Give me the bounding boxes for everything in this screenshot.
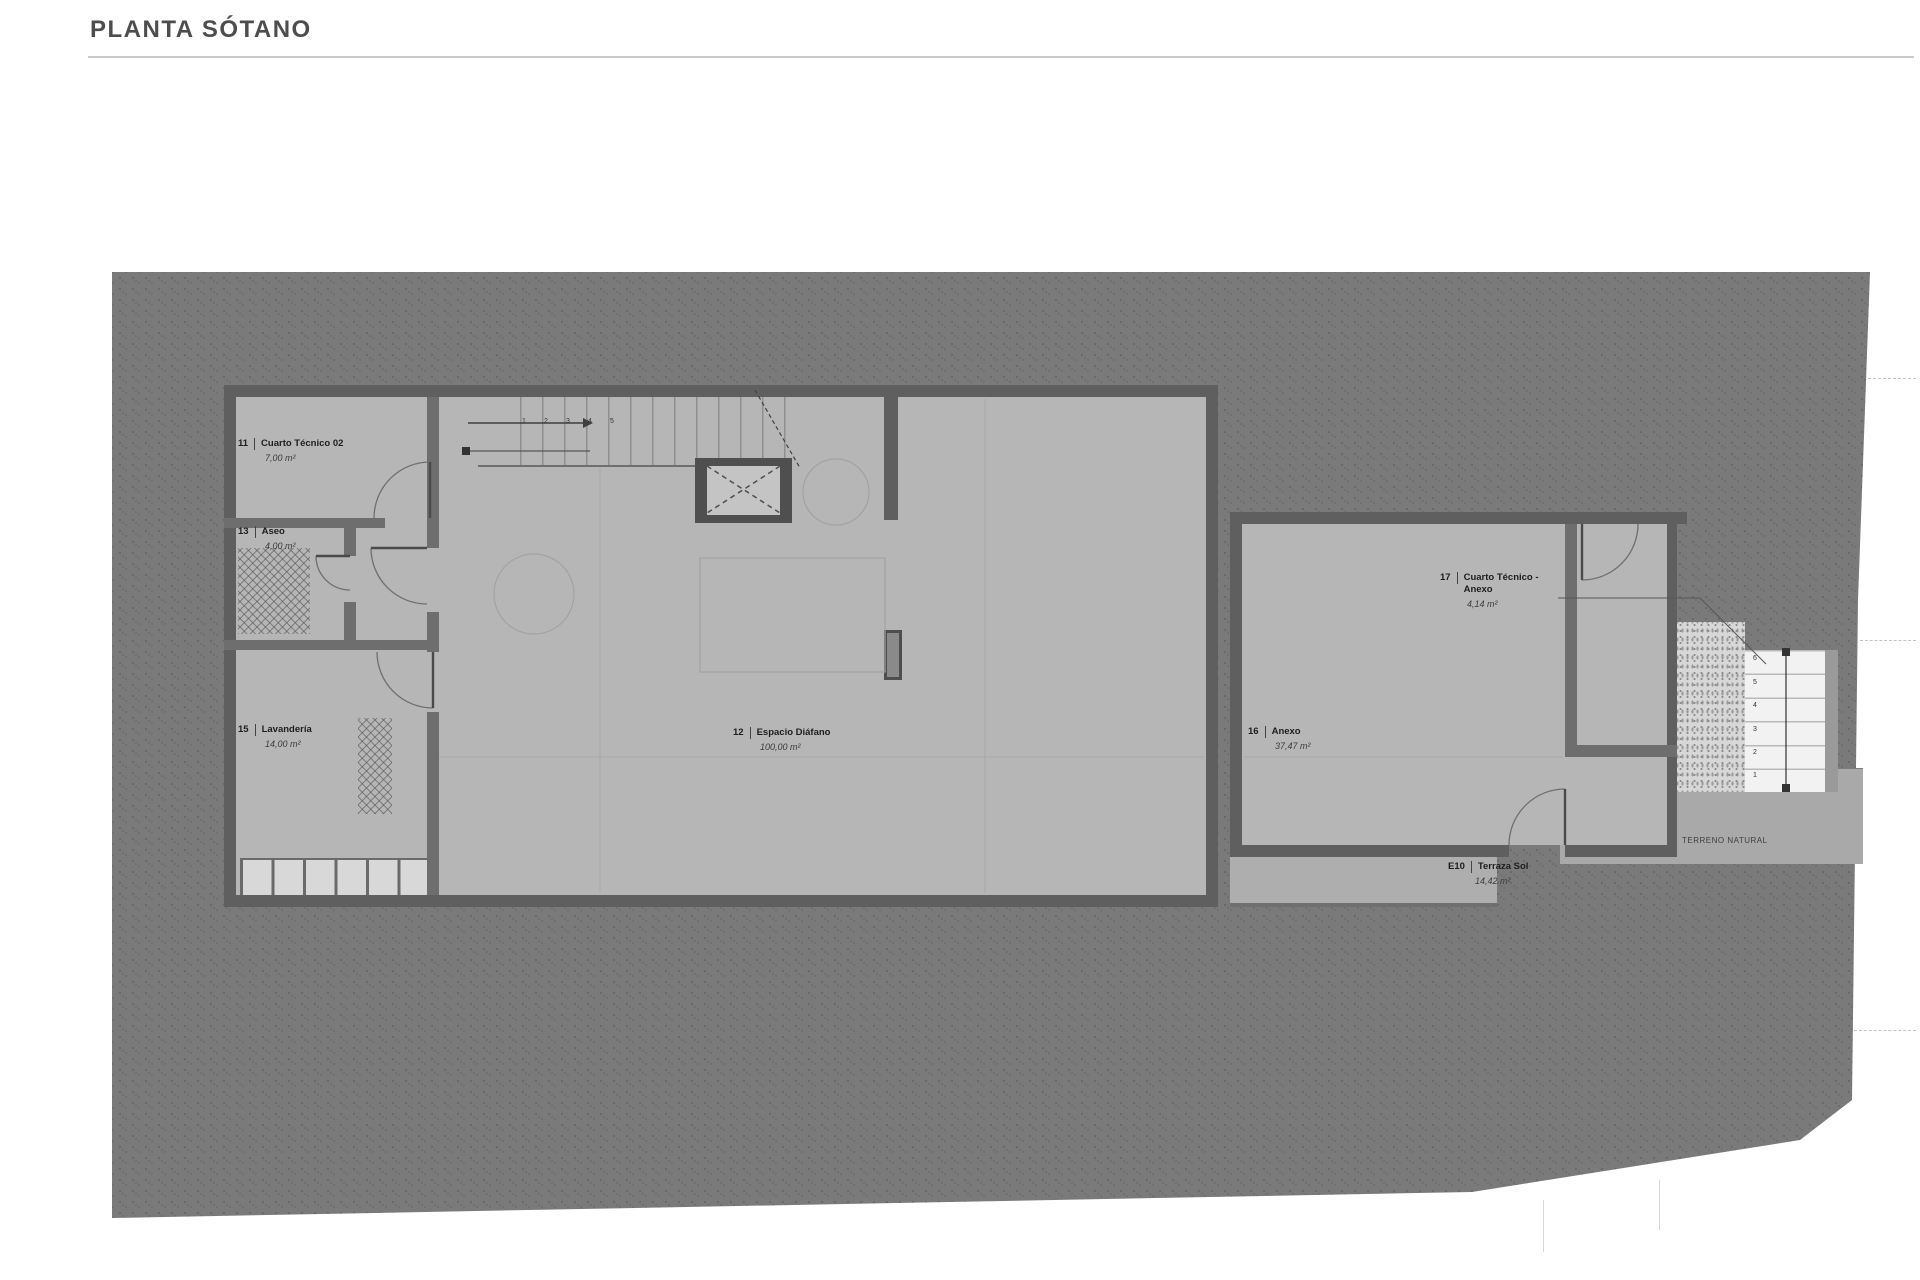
stair-step-number: 4 — [583, 418, 597, 426]
room-tag-cuarto-tecnico-02: 11Cuarto Técnico 02 7,00 m² — [238, 438, 343, 464]
boundary-tick — [1659, 1180, 1660, 1230]
stair-step-number: 2 — [539, 418, 553, 426]
room-number: 11 — [238, 438, 255, 450]
room-number: 17 — [1440, 572, 1458, 584]
boundary-dash — [1854, 1030, 1916, 1031]
boundary-dash — [1860, 640, 1916, 641]
room-name-line2: Anexo — [1464, 584, 1493, 595]
room-tag-espacio-diafano: 12Espacio Diáfano 100,00 m² — [733, 727, 831, 753]
room-name: Cuarto Técnico - — [1464, 572, 1539, 583]
room-number: 12 — [733, 727, 751, 739]
room-number: 16 — [1248, 726, 1266, 738]
room-area: 37,47 m² — [1275, 740, 1311, 752]
room-tag-cuarto-tecnico-anexo: 17 Cuarto Técnico - Anexo 4,14 m² — [1440, 572, 1539, 610]
room-area: 4,00 m² — [265, 540, 296, 552]
room-name: Cuarto Técnico 02 — [261, 438, 343, 450]
room-area: 4,14 m² — [1467, 598, 1539, 610]
room-number: 13 — [238, 526, 256, 538]
floor-plan-page: PLANTA SÓTANO — [0, 0, 1920, 1280]
furniture-outlines — [494, 459, 885, 672]
door-leaves — [316, 462, 1582, 845]
room-name: Aseo — [262, 526, 285, 538]
ext-stair-step-number: 4 — [1748, 702, 1762, 710]
room-area: 100,00 m² — [760, 741, 831, 753]
room-name: Espacio Diáfano — [757, 727, 831, 739]
room-name: Lavandería — [262, 724, 312, 736]
boundary-tick — [1543, 1200, 1544, 1252]
elevator-x-icon — [707, 466, 780, 513]
floor-joints — [439, 399, 1563, 893]
boundary-dash — [1868, 378, 1916, 379]
plan-linework — [0, 0, 1920, 1280]
room-area: 14,00 m² — [265, 738, 312, 750]
room-area: 7,00 m² — [265, 452, 343, 464]
ext-stair-step-number: 3 — [1748, 726, 1762, 734]
room-name: Anexo — [1272, 726, 1301, 738]
stair-step-number: 1 — [517, 418, 531, 426]
ext-stair-step-number: 5 — [1748, 679, 1762, 687]
terreno-natural-label: TERRENO NATURAL — [1682, 836, 1768, 845]
door-swings — [316, 462, 1638, 845]
room-tag-lavanderia: 15Lavandería 14,00 m² — [238, 724, 312, 750]
room-number: E10 — [1448, 861, 1472, 873]
exterior-stair-rail — [1782, 648, 1790, 792]
stair-step-number: 5 — [605, 418, 619, 426]
room-tag-anexo: 16Anexo 37,47 m² — [1248, 726, 1311, 752]
ext-stair-step-number: 6 — [1748, 655, 1762, 663]
ext-stair-step-number: 2 — [1748, 749, 1762, 757]
stair-step-number: 3 — [561, 418, 575, 426]
stair-arrow-icon — [462, 390, 800, 468]
room-number: 15 — [238, 724, 256, 736]
room-area: 14,42 m² — [1475, 875, 1528, 887]
label-leader-line — [1558, 598, 1766, 664]
room-name: Terraza Sol — [1478, 861, 1529, 873]
room-tag-aseo: 13Aseo 4,00 m² — [238, 526, 296, 552]
room-tag-terraza-sol: E10Terraza Sol 14,42 m² — [1448, 861, 1528, 887]
ext-stair-step-number: 1 — [1748, 772, 1762, 780]
